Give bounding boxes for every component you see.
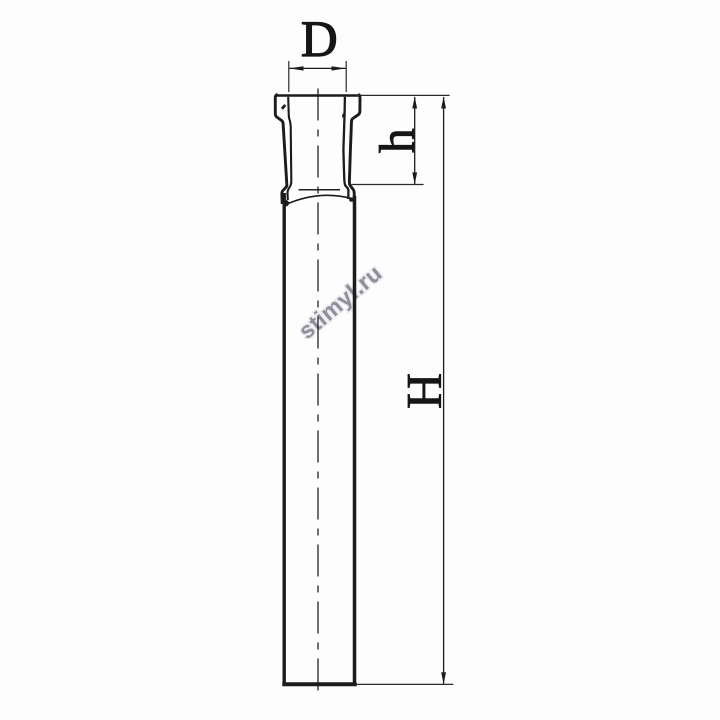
svg-text:D: D	[301, 12, 338, 68]
svg-text:h: h	[369, 128, 425, 153]
svg-text:H: H	[396, 373, 452, 409]
